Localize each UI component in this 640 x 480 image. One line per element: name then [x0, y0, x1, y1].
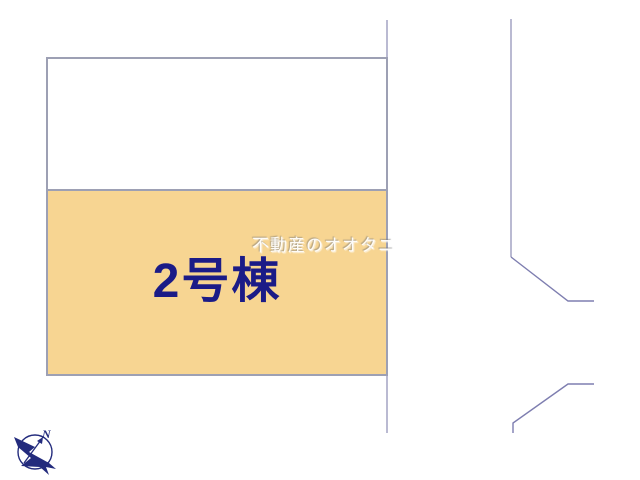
building-label: 2号棟: [47, 258, 387, 306]
watermark-text: 不動産のオオタニ: [252, 231, 396, 256]
road-edge-upper: [511, 257, 594, 301]
compass-north-icon: N: [14, 427, 56, 475]
plot-map-canvas: N 不動産のオオタニ 2号棟: [0, 0, 640, 480]
road-edge-lower: [513, 384, 594, 433]
compass-north-label: N: [41, 427, 52, 441]
